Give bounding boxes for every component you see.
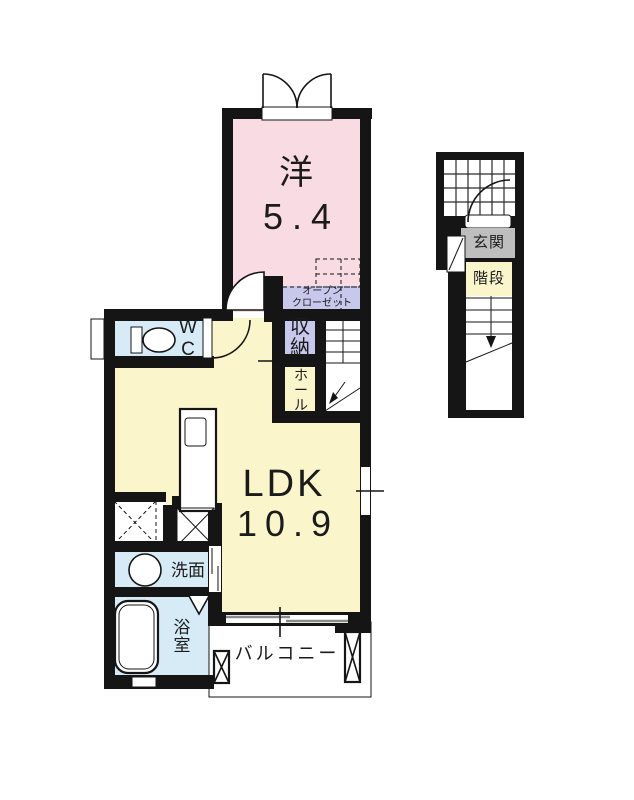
shoe-cabinet-icon [447, 236, 465, 272]
label-western-size: 5.4 [254, 198, 340, 236]
label-ldk: LDK [243, 464, 326, 504]
main-unit [91, 74, 384, 697]
fridge-nook-fill [110, 495, 166, 545]
bath-vent-icon [132, 677, 156, 687]
bathtub-icon [115, 601, 158, 673]
label-open-closet: オープン クローゼット [292, 286, 352, 310]
label-stairs: 階段 [473, 271, 505, 287]
basin-icon [129, 554, 161, 586]
porch-tiles-icon [444, 160, 515, 216]
label-hall: ホール [293, 368, 308, 412]
floor-plan-drawing [0, 0, 634, 800]
label-bathroom: 浴室 [173, 619, 192, 655]
wc-window-icon [91, 319, 104, 359]
washroom-door-icon [209, 546, 221, 592]
label-washroom: 洗面 [171, 562, 205, 580]
outline-notch [436, 270, 448, 418]
label-storage: 収納 [289, 317, 311, 359]
label-ldk-size: 10.9 [229, 505, 339, 543]
label-western-room: 洋 [279, 155, 315, 191]
double-door-icon [262, 74, 332, 120]
label-wc: W C [179, 317, 197, 361]
label-balcony: バルコニー [235, 644, 340, 663]
kitchen-counter-icon [180, 409, 216, 511]
label-entrance: 玄関 [473, 235, 505, 251]
staircase-entrance-icon [466, 296, 512, 410]
toilet-icon [131, 327, 175, 353]
floor-plan-page: 洋 5.4 LDK 10.9 W C 収納 ホール オープン クローゼット 洗面… [0, 0, 634, 800]
